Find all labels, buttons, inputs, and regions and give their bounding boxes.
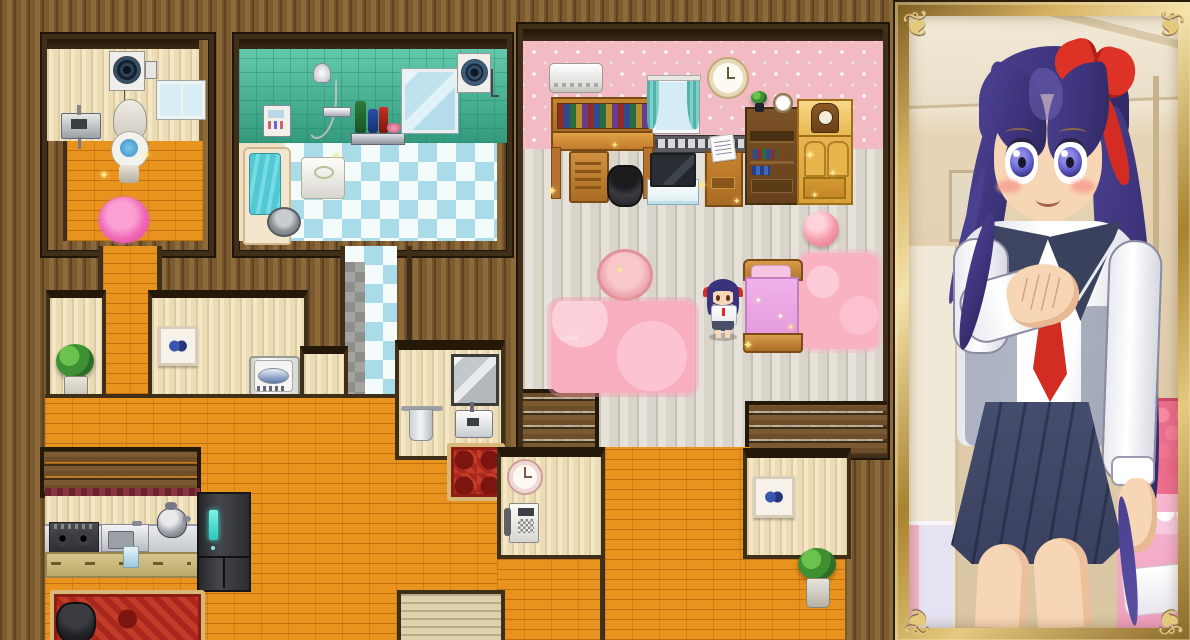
plant-pot-small [755,103,764,112]
plant-right-leaves [798,548,836,580]
letter-lines [714,139,732,155]
pink-bowl [387,123,401,133]
shelf-drawers [751,179,793,193]
shower-bar [323,107,351,117]
toilet [111,99,149,191]
sparkle: ✦ [805,149,815,161]
bedroom-window [647,75,699,133]
fridge-split-v [223,556,225,588]
curtain-right [687,75,699,129]
towel-rack [401,406,443,442]
character-girl [909,16,1178,628]
shelf-books1 [753,149,777,159]
kitchen [45,488,200,588]
sparkle: ✦ [811,191,819,200]
toilet-sink [61,105,101,141]
sparkle: ✦ [697,179,707,191]
kettle-lid [165,502,177,510]
cabinet-handles [51,562,191,565]
bedroom: ✦ ✦ [518,24,888,458]
pink-ball [803,211,839,247]
toilet-water [120,139,138,157]
bath-stool: ✦ [301,157,345,199]
bedside-rug [799,253,879,349]
toilet-rug [99,197,149,243]
portrait-scene [909,16,1178,628]
bedroom-rug: Love [551,301,695,393]
desk-hutch [551,97,655,135]
alarm-clock [773,93,793,113]
living-floor-right [600,447,750,640]
stool-hole [314,166,334,179]
kettle-spout [183,516,191,522]
butterfly-icon [169,339,187,353]
stove [49,522,99,554]
hall-mirror [451,354,499,406]
house-map[interactable]: ✦ ✦ [0,0,893,640]
nightstand: ✦ ✦ [705,151,743,207]
leg-left [975,543,1031,628]
toilet-window [157,81,205,119]
bathroom: ✦ [234,34,512,256]
glint-right [1061,150,1068,157]
wall-phone [509,503,539,543]
tv-screen [650,153,696,187]
washer-buttons [257,386,287,391]
finger-lines [1017,270,1068,314]
frame-ornament-top-right: ❦ [1153,6,1187,44]
plant-left-leaves [56,344,94,378]
desk-top [551,131,655,151]
phone-wall [497,447,605,559]
vent-blade-icon [461,59,488,86]
fan-blade-icon [113,56,141,84]
water-glass [123,546,139,568]
letter [709,133,736,162]
butterfly-wall-right [743,448,851,559]
sprite-legs [716,330,730,338]
phone-keys [518,519,534,533]
portrait-panel: ❦ ❦ ❦ ❦ [893,0,1190,640]
clock-hand2 [727,77,735,79]
bucket [267,207,301,237]
bathroom-header [239,39,507,49]
toilet-base [119,165,139,183]
sink-drain [71,119,87,129]
sparkle: ✦ [743,339,753,351]
fridge [197,492,251,592]
bath-panel [263,105,291,137]
bedroom-clock [707,57,749,99]
desk-chair [569,151,609,203]
sleeve-right [1101,239,1163,485]
eye-right [1054,138,1087,184]
cabinets [45,552,200,578]
desk-books [557,103,649,129]
round-table: ✦ [597,249,653,301]
pupil-left [1018,157,1026,168]
blush-left [997,180,1021,193]
burner-left [55,531,70,546]
bookshelf [745,107,801,205]
shower [305,63,349,143]
door-mat [397,590,505,640]
ac-vent [554,83,598,87]
sparkle: ✦ [611,141,619,150]
butterfly-left [158,326,198,366]
butterfly-right [753,476,795,518]
sparkle: ✦ [616,266,624,275]
brow-left [1005,128,1033,138]
leg-right [1032,536,1092,628]
vent-fan [457,53,491,93]
curtain-rod [647,75,701,81]
frame-ornament-bottom-right: ❦ [1153,602,1187,640]
shelf-table [351,133,405,145]
sink-leg [78,137,81,149]
sprite-eye-l [716,295,720,301]
kettle-body [157,508,187,538]
game-screen: ✦ ✦ [0,0,1190,640]
power-outlet [145,61,157,79]
sparkle: ✦ [547,185,557,197]
panel-screen [268,110,284,118]
air-conditioner [549,63,603,93]
bath-mirror [402,69,458,133]
sprite-eye-r [726,295,730,301]
hall-clock-hand-h [524,476,532,478]
shampoo-shelf [351,99,403,145]
shelf-row1 [750,131,794,143]
kitchen-valance [45,488,200,496]
bedroom-header [523,29,883,41]
sparkle: ✦ [755,297,762,305]
glint-left [1013,150,1020,157]
trash-bin [607,165,643,207]
sparkle: ✦ [787,323,795,332]
sprite-tie [722,308,725,316]
frame-ornament-top-left: ❦ [900,6,934,44]
vent-cord [491,69,499,97]
pupil-right [1066,157,1074,168]
sink-faucet [77,105,81,115]
kettle [155,500,189,538]
plant-right [798,548,836,610]
mantel-clock-face [818,110,833,125]
window-mullion [181,84,183,116]
hall-sink-faucet [470,402,474,412]
ksink-faucet [132,521,142,526]
panel-buttons [268,121,284,129]
sparkle: ✦ [332,152,340,162]
hall-clock [507,459,543,495]
hall-sink [455,402,493,442]
shelf-books2 [752,166,770,175]
bathtub-water [249,153,281,215]
tv-stand [647,153,697,203]
mantel-clock [811,103,839,133]
sparkle: ✦ [829,169,837,178]
bed: ✦ ✦ ✦ ✦ [743,259,799,351]
towel [409,409,433,441]
phone-screen [518,508,534,516]
blush-right [1071,180,1095,193]
shelf-row2 [750,161,794,164]
brow-right [1059,128,1087,138]
toilet-room-header [47,39,199,49]
cook-pot [56,602,96,640]
toilet-room: ✦ ✦ [42,34,214,256]
sparkle: ✦ [99,169,109,181]
butterfly-icon [765,490,783,504]
phone-handset [504,508,511,536]
bottle-green [355,101,366,133]
fridge-light [209,510,218,540]
shelf-plant [751,91,767,113]
stove-knobs [54,524,94,529]
hall-sink-drain [467,418,479,426]
chair-slats [575,159,601,189]
living-floor-bottomcenter [497,545,600,640]
sparkle: ✦ [143,151,151,160]
washer-glass [258,368,289,384]
eye-left [1005,138,1038,184]
heroine-sprite[interactable] [703,279,743,343]
fridge-dot [211,546,215,550]
sparkle: ✦ [733,197,741,206]
frame-ornament-bottom-left: ❦ [900,602,934,640]
laundry-nook [395,340,505,460]
wardrobe: ✦ ✦ ✦ [797,99,853,205]
burner-right [76,531,91,546]
bottle-blue [368,109,378,133]
wardrobe-drawers [803,177,846,199]
sparkle: ✦ [777,313,784,321]
mouth [1036,192,1060,207]
exhaust-fan [109,51,145,91]
nightstand-drawer [711,177,735,189]
rug-love-text: Love [561,333,578,342]
plant-right-pot [806,578,830,608]
